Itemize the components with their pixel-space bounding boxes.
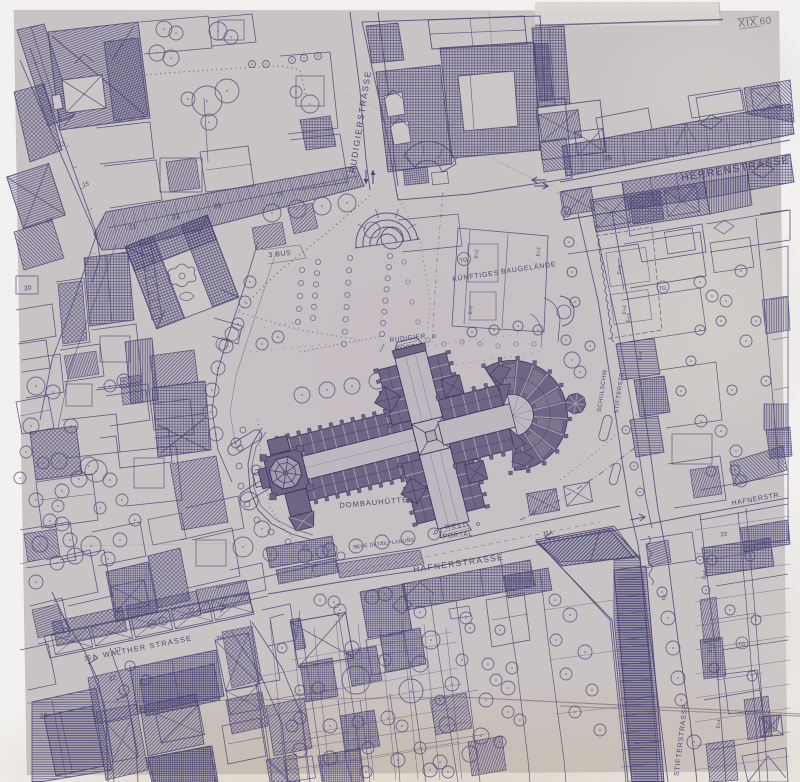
svg-text:20: 20 [24, 284, 33, 292]
svg-text:25: 25 [213, 202, 222, 210]
svg-text:E+3: E+3 [536, 247, 543, 257]
svg-text:E+2: E+2 [468, 305, 475, 315]
svg-text:TG: TG [661, 594, 668, 602]
svg-text:E+2: E+2 [474, 249, 481, 259]
svg-text:23: 23 [171, 213, 180, 221]
svg-text:35: 35 [603, 154, 612, 162]
svg-text:21: 21 [128, 223, 137, 231]
svg-text:E+4: E+4 [622, 305, 629, 315]
svg-text:E+3: E+3 [626, 313, 633, 323]
svg-text:E+4: E+4 [716, 719, 723, 729]
svg-text:E+4: E+4 [638, 351, 645, 361]
svg-text:60: 60 [759, 15, 772, 27]
